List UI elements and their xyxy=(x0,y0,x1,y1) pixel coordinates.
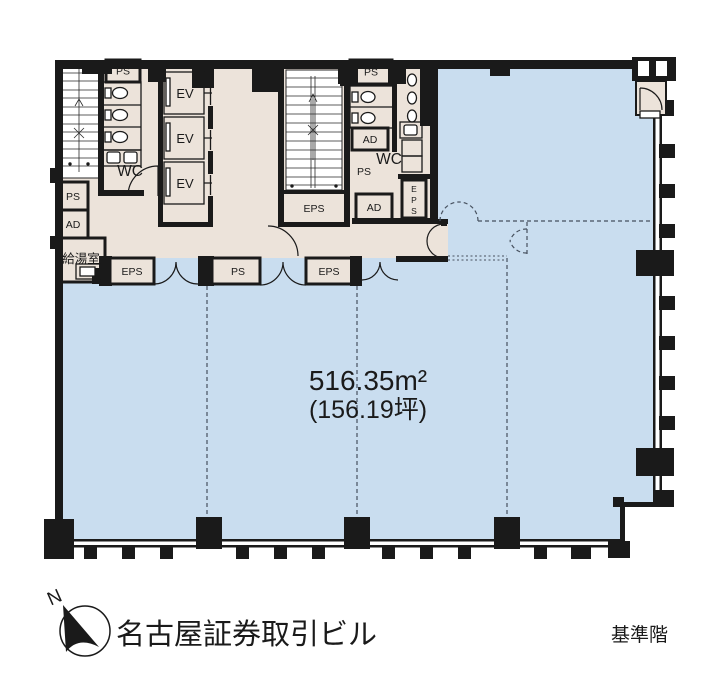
wc-label-mid: WC xyxy=(376,151,402,168)
building-name: 名古屋証券取引ビル xyxy=(116,618,377,651)
north-label: N xyxy=(44,586,65,611)
eps-vertical-e: E xyxy=(411,184,417,194)
north-compass: N xyxy=(44,586,110,656)
ad-label-mid: AD xyxy=(363,134,378,146)
area-annotation: 516.35m² (156.19坪) xyxy=(309,365,427,424)
wc-label-left: WC xyxy=(117,163,143,180)
floor-type-label: 基準階 xyxy=(611,624,668,646)
ev-label-3: EV xyxy=(176,176,194,191)
floor-plan-drawing: PS PS PS PS PS AD AD AD EV EV EV WC WC E… xyxy=(0,0,724,678)
toilet xyxy=(105,88,128,143)
staircase-center xyxy=(286,70,342,190)
area-sqm: 516.35m² xyxy=(309,365,427,396)
floor-plan-page: PS PS PS PS PS AD AD AD EV EV EV WC WC E… xyxy=(0,0,724,678)
eps-label-south-2: EPS xyxy=(318,266,339,278)
eps-label-south-1: EPS xyxy=(121,266,142,278)
ps-label-top-left: PS xyxy=(116,66,130,78)
corner-room xyxy=(636,81,666,118)
kitchenette-label: 給湯室 xyxy=(62,251,100,266)
ps-label-south: PS xyxy=(231,266,245,278)
ad-label-low: AD xyxy=(367,202,382,214)
ps-label-corridor: PS xyxy=(357,166,371,178)
eps-vertical-s: S xyxy=(411,206,417,216)
eps-label-stair: EPS xyxy=(303,203,324,215)
ev-label-2: EV xyxy=(176,131,194,146)
ps-label-top-mid: PS xyxy=(364,67,378,79)
ps-label-west: PS xyxy=(66,191,80,203)
ev-label-1: EV xyxy=(176,86,194,101)
eps-vertical-p: P xyxy=(411,195,417,205)
urinal xyxy=(408,74,417,122)
ad-label-west: AD xyxy=(66,219,81,231)
staircase-left xyxy=(59,64,99,178)
area-tsubo: (156.19坪) xyxy=(309,396,427,424)
